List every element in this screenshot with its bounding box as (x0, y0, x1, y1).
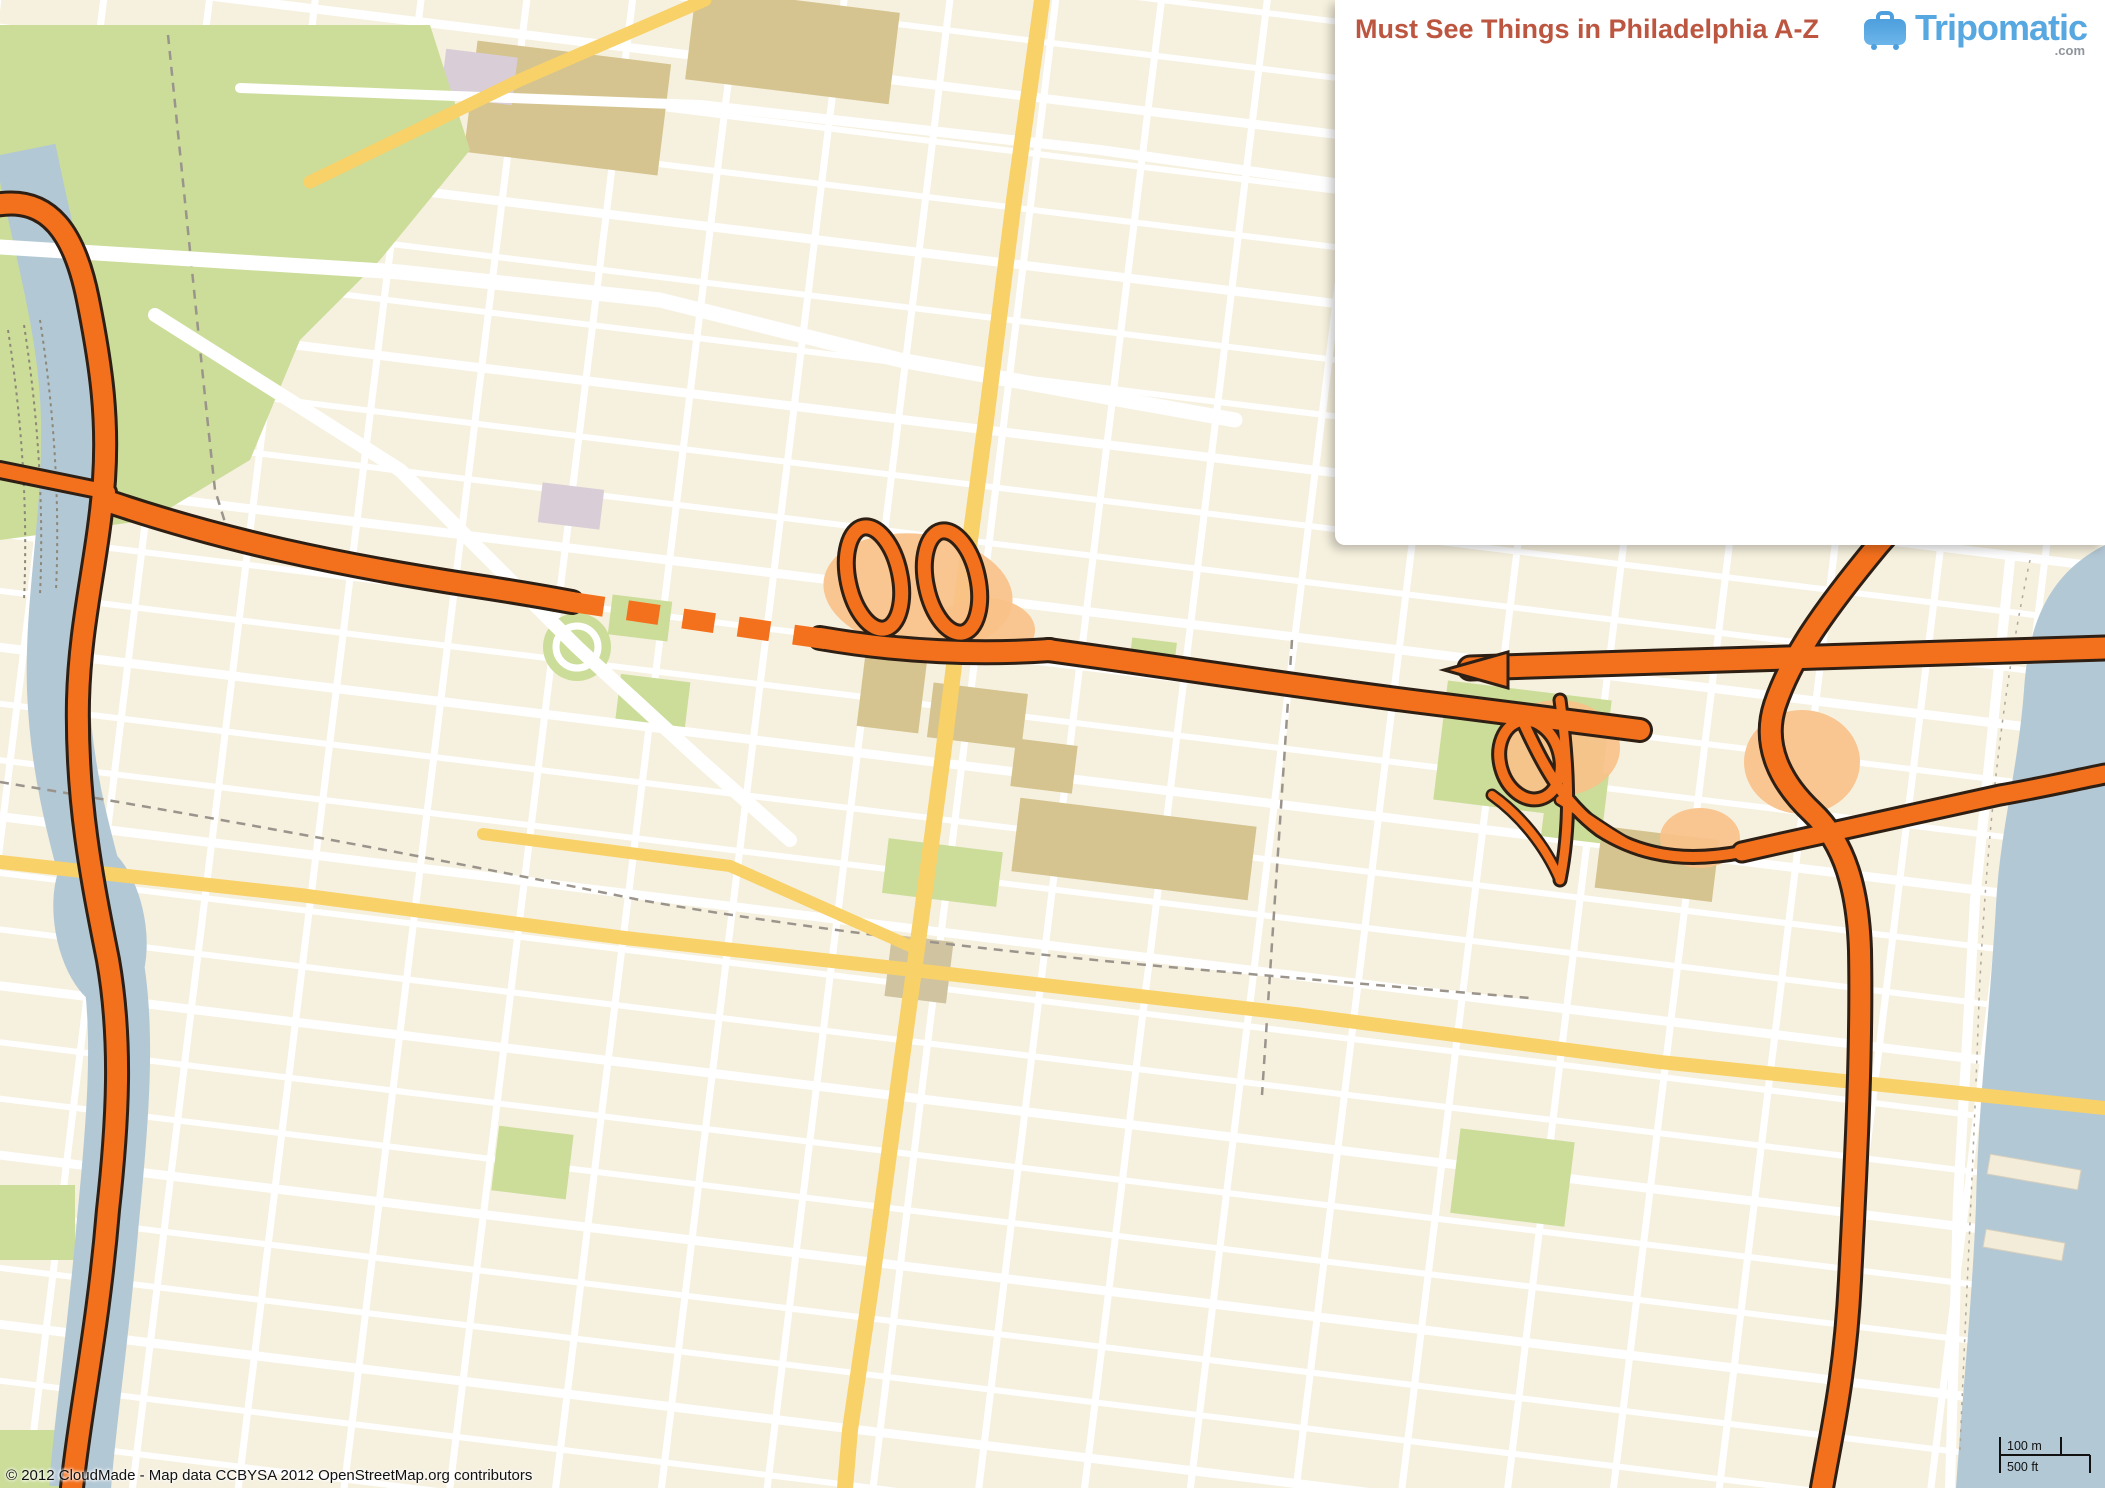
logo-wordmark: Tripomatic (1915, 7, 2087, 48)
legend-panel: Must See Things in Philadelphia A-Z Trip… (1335, 0, 2105, 545)
scale-metric-label: 100 m (2007, 1439, 2042, 1453)
scale-imperial-label: 500 ft (2007, 1460, 2039, 1474)
rittenhouse-square-park (491, 1126, 573, 1200)
suitcase-icon (1861, 8, 1909, 57)
map-attribution: © 2012 CloudMade - Map data CCBYSA 2012 … (6, 1467, 532, 1484)
markward-park-green (0, 1185, 75, 1260)
scale-bar: 100 m 500 ft (1997, 1433, 2093, 1482)
map-viewport[interactable]: Must See Things in Philadelphia A-Z Trip… (0, 0, 2105, 1488)
washington-square-park (1450, 1128, 1575, 1226)
logo-tld: .com (2055, 43, 2085, 58)
tripomatic-logo[interactable]: Tripomatic .com (1861, 8, 2087, 57)
